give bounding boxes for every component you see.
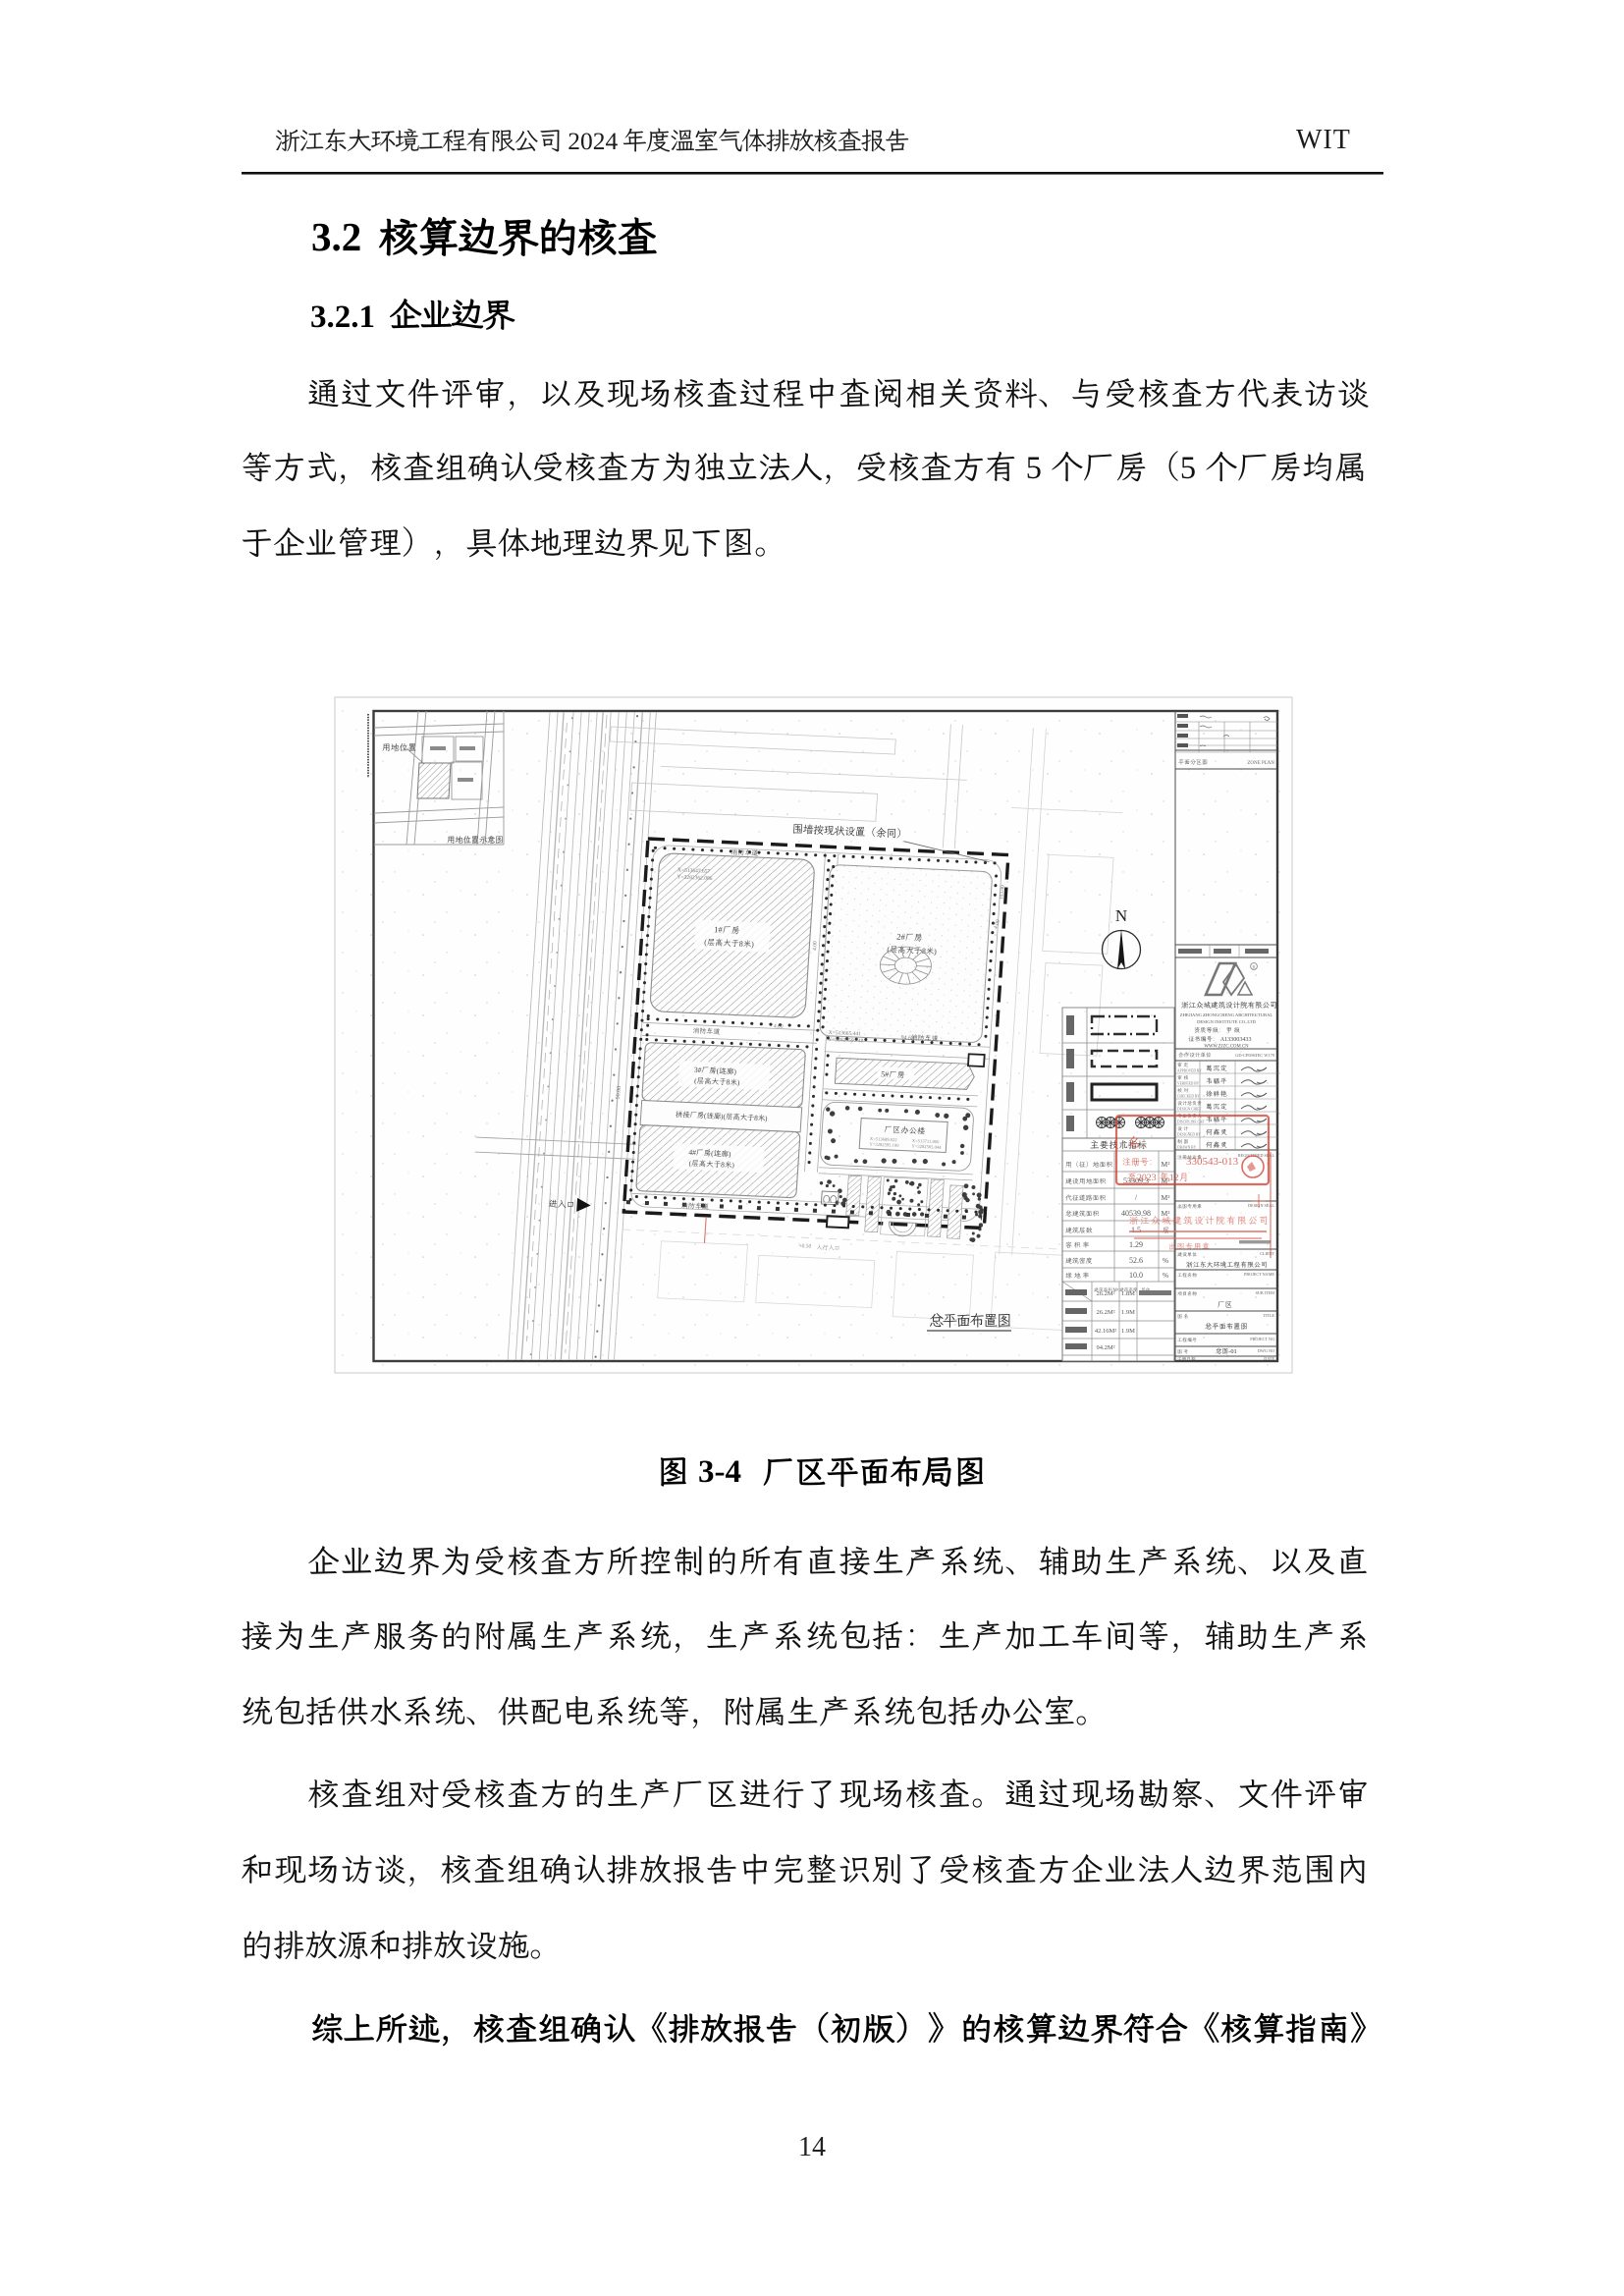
svg-text:1.29: 1.29	[1129, 1240, 1143, 1249]
svg-text:3.2: 3.2	[311, 214, 361, 259]
svg-text:DESIGN CHIEF: DESIGN CHIEF	[1177, 1108, 1201, 1112]
svg-text:WWW.ZJZC.COM.CN: WWW.ZJZC.COM.CN	[1204, 1045, 1249, 1050]
svg-text:1.9M: 1.9M	[1121, 1309, 1135, 1316]
svg-text:%: %	[1163, 1256, 1168, 1265]
svg-text:1#: 1#	[714, 924, 724, 934]
svg-text:GD-CP696TEC W179: GD-CP696TEC W179	[1235, 1053, 1275, 1058]
svg-text:CHECKED BY: CHECKED BY	[1177, 1095, 1200, 1099]
svg-text:M²: M²	[1162, 1193, 1171, 1202]
svg-text:2023: 2023	[1137, 1173, 1157, 1183]
svg-text:DATE: DATE	[1264, 1356, 1274, 1361]
svg-text:DESIGNED BY: DESIGNED BY	[1177, 1133, 1201, 1137]
svg-text:2024: 2024	[568, 127, 618, 155]
svg-text:%: %	[1163, 1271, 1168, 1280]
svg-text:1.9M: 1.9M	[1121, 1328, 1135, 1335]
svg-text:A133003433: A133003433	[1220, 1037, 1252, 1043]
svg-text:DWG NO: DWG NO	[1258, 1348, 1274, 1353]
svg-text:PROJECT NO: PROJECT NO	[1250, 1337, 1274, 1341]
svg-text:DRAWN BY: DRAWN BY	[1177, 1146, 1197, 1150]
svg-text:APPROVED BY: APPROVED BY	[1177, 1069, 1202, 1073]
svg-text:M²: M²	[1162, 1209, 1171, 1218]
svg-text:26.2M²: 26.2M²	[1096, 1309, 1114, 1316]
svg-text:N: N	[1115, 906, 1127, 925]
svg-text:3#: 3#	[694, 1066, 702, 1074]
svg-text:TITLE: TITLE	[1263, 1313, 1274, 1318]
svg-text:M²: M²	[1162, 1160, 1171, 1169]
svg-text:5#: 5#	[881, 1069, 890, 1078]
svg-text:8: 8	[739, 939, 744, 948]
svg-text:SUB ITEM: SUB ITEM	[1256, 1290, 1275, 1295]
svg-text:-01: -01	[1228, 1348, 1237, 1355]
svg-text:WIT: WIT	[1296, 125, 1351, 155]
svg-text:52.6: 52.6	[1129, 1256, 1143, 1265]
svg-text:94.2M²: 94.2M²	[1096, 1344, 1114, 1351]
svg-text:4#: 4#	[688, 1148, 696, 1157]
svg-text:1.8M: 1.8M	[1121, 1290, 1135, 1297]
svg-text:330543-013: 330543-013	[1186, 1156, 1239, 1168]
svg-text:12: 12	[1169, 1173, 1179, 1183]
svg-text:10.0: 10.0	[1129, 1271, 1143, 1280]
svg-text:26.2M²: 26.2M²	[1096, 1290, 1114, 1297]
svg-text:14: 14	[798, 2132, 826, 2162]
svg-text:DISCIPLINE CHF: DISCIPLINE CHF	[1177, 1121, 1204, 1124]
svg-text:42.16M²: 42.16M²	[1095, 1328, 1116, 1335]
svg-text:VERIFIED BY: VERIFIED BY	[1177, 1082, 1200, 1086]
svg-text:5: 5	[1026, 450, 1042, 485]
svg-text:+0.50: +0.50	[798, 1243, 811, 1250]
svg-text:40539.98: 40539.98	[1121, 1209, 1151, 1218]
svg-text:PROJECT NAME: PROJECT NAME	[1244, 1272, 1274, 1277]
svg-text:3.2.1: 3.2.1	[310, 300, 375, 335]
svg-text:4.00: 4.00	[812, 941, 819, 951]
svg-text:2#: 2#	[896, 932, 906, 942]
svg-text:4.00: 4.00	[774, 1023, 784, 1029]
svg-text:ZHEJIANG ZHONGCHENG ARCHITECTU: ZHEJIANG ZHONGCHENG ARCHITECTURAL	[1180, 1012, 1273, 1017]
svg-text:5: 5	[1180, 450, 1196, 485]
svg-text:CLIENT: CLIENT	[1260, 1251, 1274, 1256]
svg-text:ZONE PLAN: ZONE PLAN	[1247, 761, 1274, 766]
svg-text:3-4: 3-4	[698, 1454, 741, 1490]
svg-text:1.5: 1.5	[1131, 1226, 1141, 1234]
